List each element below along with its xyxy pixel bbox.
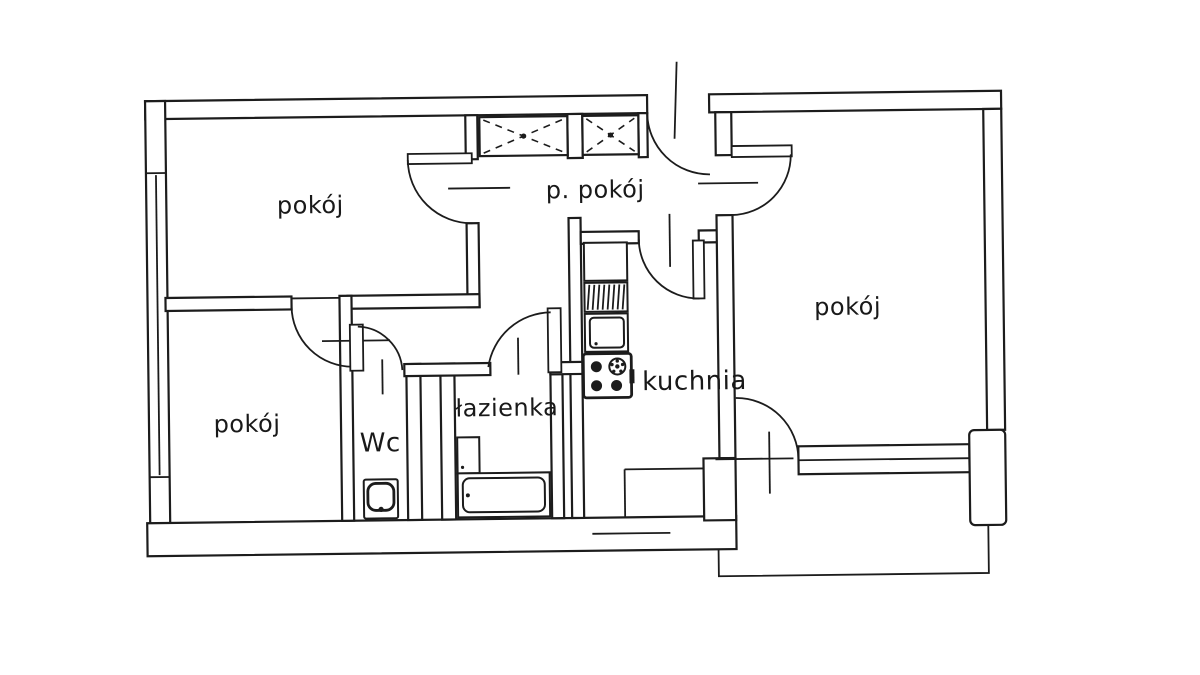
washbasin-icon: [457, 437, 479, 473]
wall-pillar: [969, 430, 1006, 525]
toilet-icon: [364, 479, 398, 518]
entrance-door-leaf-icon: [674, 62, 678, 139]
bottom-wall-detail: [592, 533, 670, 534]
label-bathroom: łazienka: [455, 393, 558, 422]
kitchen-step: [625, 469, 626, 517]
floor-plan: pokój p. pokój pokój pokój Wc łazienka k…: [0, 0, 1200, 675]
door-leaf-icon: [350, 325, 364, 371]
door-axis-tick: [669, 214, 670, 267]
door-leaf-icon: [732, 145, 792, 157]
door-leaf-icon: [408, 153, 472, 164]
door-axis-tick: [715, 458, 793, 459]
kitchen-step: [625, 468, 704, 469]
stove-icon: [583, 353, 635, 398]
door-arc-icon: [731, 154, 792, 215]
wall-right-exterior: [983, 109, 1005, 430]
door-arc-icon: [408, 159, 473, 224]
interior-walls: [163, 112, 736, 527]
wall-segment: [404, 363, 490, 376]
door-axis-tick: [698, 183, 758, 184]
wall-segment: [165, 296, 291, 311]
wall-segment: [716, 215, 735, 458]
door-axis-tick: [448, 188, 510, 189]
wall-segment: [567, 114, 583, 158]
label-room-right: pokój: [814, 292, 881, 321]
floor-plan-page: pokój p. pokój pokój pokój Wc łazienka k…: [0, 0, 1200, 675]
stove-burner-flower: [609, 358, 625, 374]
door-arc-icon: [488, 312, 552, 367]
wall-segment: [703, 458, 736, 520]
label-room-bottom-left: pokój: [213, 410, 280, 439]
balcony-outline: [718, 525, 989, 576]
label-room-top-left: pokój: [277, 191, 344, 220]
label-wc: Wc: [360, 428, 401, 458]
wall-top-right-section: [709, 91, 1001, 113]
wall-segment: [440, 363, 456, 519]
wall-segment: [406, 364, 422, 520]
door-arc-icon: [736, 397, 799, 460]
door-leaf-icon: [548, 308, 562, 372]
kitchen-drainer-icon: [584, 282, 627, 312]
kitchen-counter-icon: [584, 242, 627, 281]
kitchen-fixtures: [582, 242, 635, 398]
wall-bottom-exterior: [147, 516, 736, 556]
label-kitchen: kuchnia: [642, 366, 747, 397]
bathtub-inner: [463, 477, 545, 512]
wall-segment: [715, 112, 732, 155]
door-leaf-icon: [693, 240, 705, 298]
wardrobes: [479, 115, 638, 156]
wall-segment: [347, 294, 479, 309]
entrance-door-arc-icon: [647, 112, 710, 175]
label-hallway: p. pokój: [546, 175, 645, 204]
balcony-zone: [717, 430, 1007, 577]
door-axis-tick: [769, 432, 770, 494]
door-arc-icon: [358, 326, 403, 371]
